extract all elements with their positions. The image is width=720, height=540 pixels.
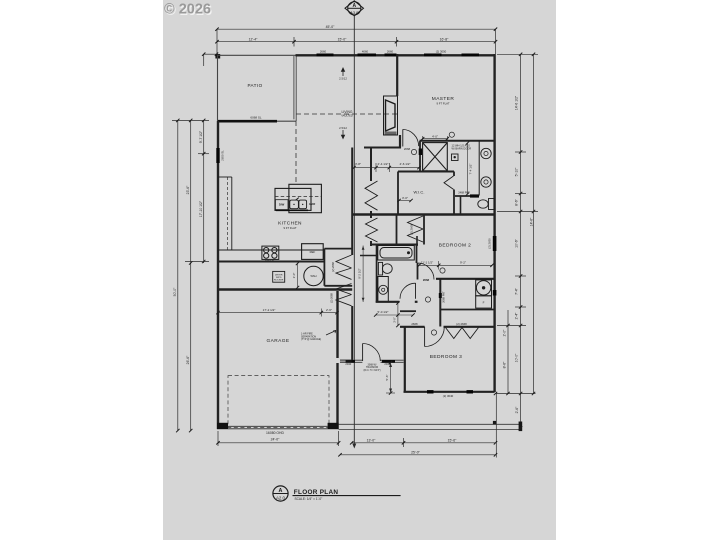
svg-text:(2) 2668: (2) 2668 bbox=[410, 224, 414, 235]
svg-text:WSH: WSH bbox=[310, 274, 316, 278]
svg-text:SCALE: 1/4" = 1'-0": SCALE: 1/4" = 1'-0" bbox=[295, 497, 323, 501]
svg-text:2'-6": 2'-6" bbox=[326, 308, 332, 312]
svg-text:2'-4": 2'-4" bbox=[515, 312, 519, 320]
svg-text:14'-6 1/2": 14'-6 1/2" bbox=[515, 95, 519, 110]
svg-text:2'-4 1/2": 2'-4 1/2" bbox=[378, 162, 389, 166]
svg-text:11'-1 1/2": 11'-1 1/2" bbox=[421, 261, 433, 265]
svg-text:2668: 2668 bbox=[404, 147, 411, 151]
svg-text:5'-10": 5'-10" bbox=[515, 167, 519, 176]
svg-text:10'-0": 10'-0" bbox=[515, 353, 519, 362]
svg-text:A2.0: A2.0 bbox=[276, 496, 286, 501]
svg-text:A: A bbox=[279, 488, 283, 494]
svg-text:17'-2 1/2": 17'-2 1/2" bbox=[263, 308, 276, 312]
svg-text:24'-0": 24'-0" bbox=[271, 437, 280, 441]
svg-text:W.I.C.: W.I.C. bbox=[414, 190, 425, 195]
svg-text:15'-6": 15'-6" bbox=[448, 438, 457, 442]
svg-text:50'-0": 50'-0" bbox=[173, 287, 177, 296]
svg-text:25'-0": 25'-0" bbox=[411, 451, 420, 455]
svg-text:2.5/12: 2.5/12 bbox=[339, 126, 347, 130]
svg-text:9'-2 1/2": 9'-2 1/2" bbox=[358, 268, 362, 278]
svg-text:BEDROOM 2: BEDROOM 2 bbox=[439, 243, 471, 249]
svg-text:2068 PKT: 2068 PKT bbox=[442, 291, 446, 303]
svg-text:9 FT FLAT: 9 FT FLAT bbox=[436, 102, 449, 106]
svg-text:12'-4": 12'-4" bbox=[249, 37, 258, 41]
svg-text:2668: 2668 bbox=[423, 278, 430, 282]
svg-text:23'-6": 23'-6" bbox=[186, 185, 190, 194]
svg-text:(R.O. H = 94.5"): (R.O. H = 94.5") bbox=[363, 369, 380, 372]
svg-text:(2) 2650: (2) 2650 bbox=[488, 238, 492, 249]
svg-text:2040: 2040 bbox=[345, 362, 351, 366]
svg-text:(TYP @ GARAGE): (TYP @ GARAGE) bbox=[301, 338, 321, 341]
svg-text:GARAGE: GARAGE bbox=[267, 338, 290, 344]
svg-text:2'-6": 2'-6" bbox=[515, 406, 519, 414]
svg-text:A3.0: A3.0 bbox=[350, 10, 359, 15]
svg-text:D/W: D/W bbox=[279, 202, 285, 206]
svg-text:8'-6": 8'-6" bbox=[515, 198, 519, 206]
svg-text:REF: REF bbox=[310, 250, 316, 254]
svg-text:W/ BARN DOOR: W/ BARN DOOR bbox=[452, 146, 472, 150]
svg-text:(2) 2668: (2) 2668 bbox=[456, 322, 467, 326]
svg-text:9'-2": 9'-2" bbox=[460, 261, 466, 265]
svg-text:9'-7 1/2": 9'-7 1/2" bbox=[199, 130, 203, 143]
svg-text:7'-4": 7'-4" bbox=[515, 287, 519, 295]
svg-text:PATIO: PATIO bbox=[247, 83, 262, 88]
svg-text:26'-6": 26'-6" bbox=[186, 355, 190, 364]
svg-text:ROCKER: ROCKER bbox=[274, 280, 284, 282]
svg-text:9 FT FLAT: 9 FT FLAT bbox=[283, 226, 296, 230]
svg-text:14'-6": 14'-6" bbox=[530, 217, 534, 226]
svg-text:3'-0": 3'-0" bbox=[402, 196, 408, 200]
svg-text:2650 SL: 2650 SL bbox=[221, 150, 225, 161]
svg-text:5'-0 1/2": 5'-0 1/2" bbox=[378, 310, 389, 314]
svg-text:3'-8": 3'-8" bbox=[355, 162, 361, 166]
svg-text:(2) 3050: (2) 3050 bbox=[436, 50, 447, 54]
svg-text:3'-0": 3'-0" bbox=[393, 317, 397, 323]
svg-text:13'-0": 13'-0" bbox=[367, 438, 376, 442]
svg-text:3'-0": 3'-0" bbox=[292, 273, 296, 279]
svg-text:15'-0": 15'-0" bbox=[338, 37, 347, 41]
svg-text:8'-6": 8'-6" bbox=[503, 361, 507, 369]
svg-text:2660: 2660 bbox=[387, 50, 394, 54]
svg-text:16080 OHD: 16080 OHD bbox=[266, 431, 284, 435]
svg-text:6068 SL: 6068 SL bbox=[250, 116, 262, 120]
svg-text:4'-0": 4'-0" bbox=[432, 134, 438, 138]
svg-text:4'-6 1/2": 4'-6 1/2" bbox=[400, 162, 411, 166]
svg-text:17'-10 1/2": 17'-10 1/2" bbox=[199, 200, 203, 217]
svg-text:2'-0": 2'-0" bbox=[503, 329, 507, 337]
svg-text:© 2026: © 2026 bbox=[164, 2, 211, 18]
svg-text:2660: 2660 bbox=[320, 50, 327, 54]
svg-text:2668: 2668 bbox=[411, 322, 418, 326]
svg-text:(2) 2668: (2) 2668 bbox=[330, 293, 334, 303]
svg-text:FLOOR PLAN: FLOOR PLAN bbox=[294, 489, 339, 496]
svg-text:4060: 4060 bbox=[362, 50, 369, 54]
svg-text:7'-4 1/2": 7'-4 1/2" bbox=[469, 164, 473, 175]
svg-text:10'-6": 10'-6" bbox=[515, 238, 519, 247]
svg-text:BAR: BAR bbox=[309, 202, 315, 206]
svg-text:5'-6": 5'-6" bbox=[385, 375, 389, 381]
svg-text:A: A bbox=[352, 3, 356, 9]
svg-text:16'-8": 16'-8" bbox=[440, 37, 449, 41]
svg-text:LIVING: LIVING bbox=[341, 110, 352, 114]
svg-text:2.5/12: 2.5/12 bbox=[339, 77, 347, 81]
svg-text:45'-0": 45'-0" bbox=[326, 25, 335, 29]
svg-text:(2) 2668: (2) 2668 bbox=[331, 262, 335, 272]
svg-text:F: F bbox=[483, 301, 485, 305]
svg-text:BEDROOM 3: BEDROOM 3 bbox=[430, 354, 462, 360]
svg-text:(2) 3040: (2) 3040 bbox=[443, 394, 454, 398]
